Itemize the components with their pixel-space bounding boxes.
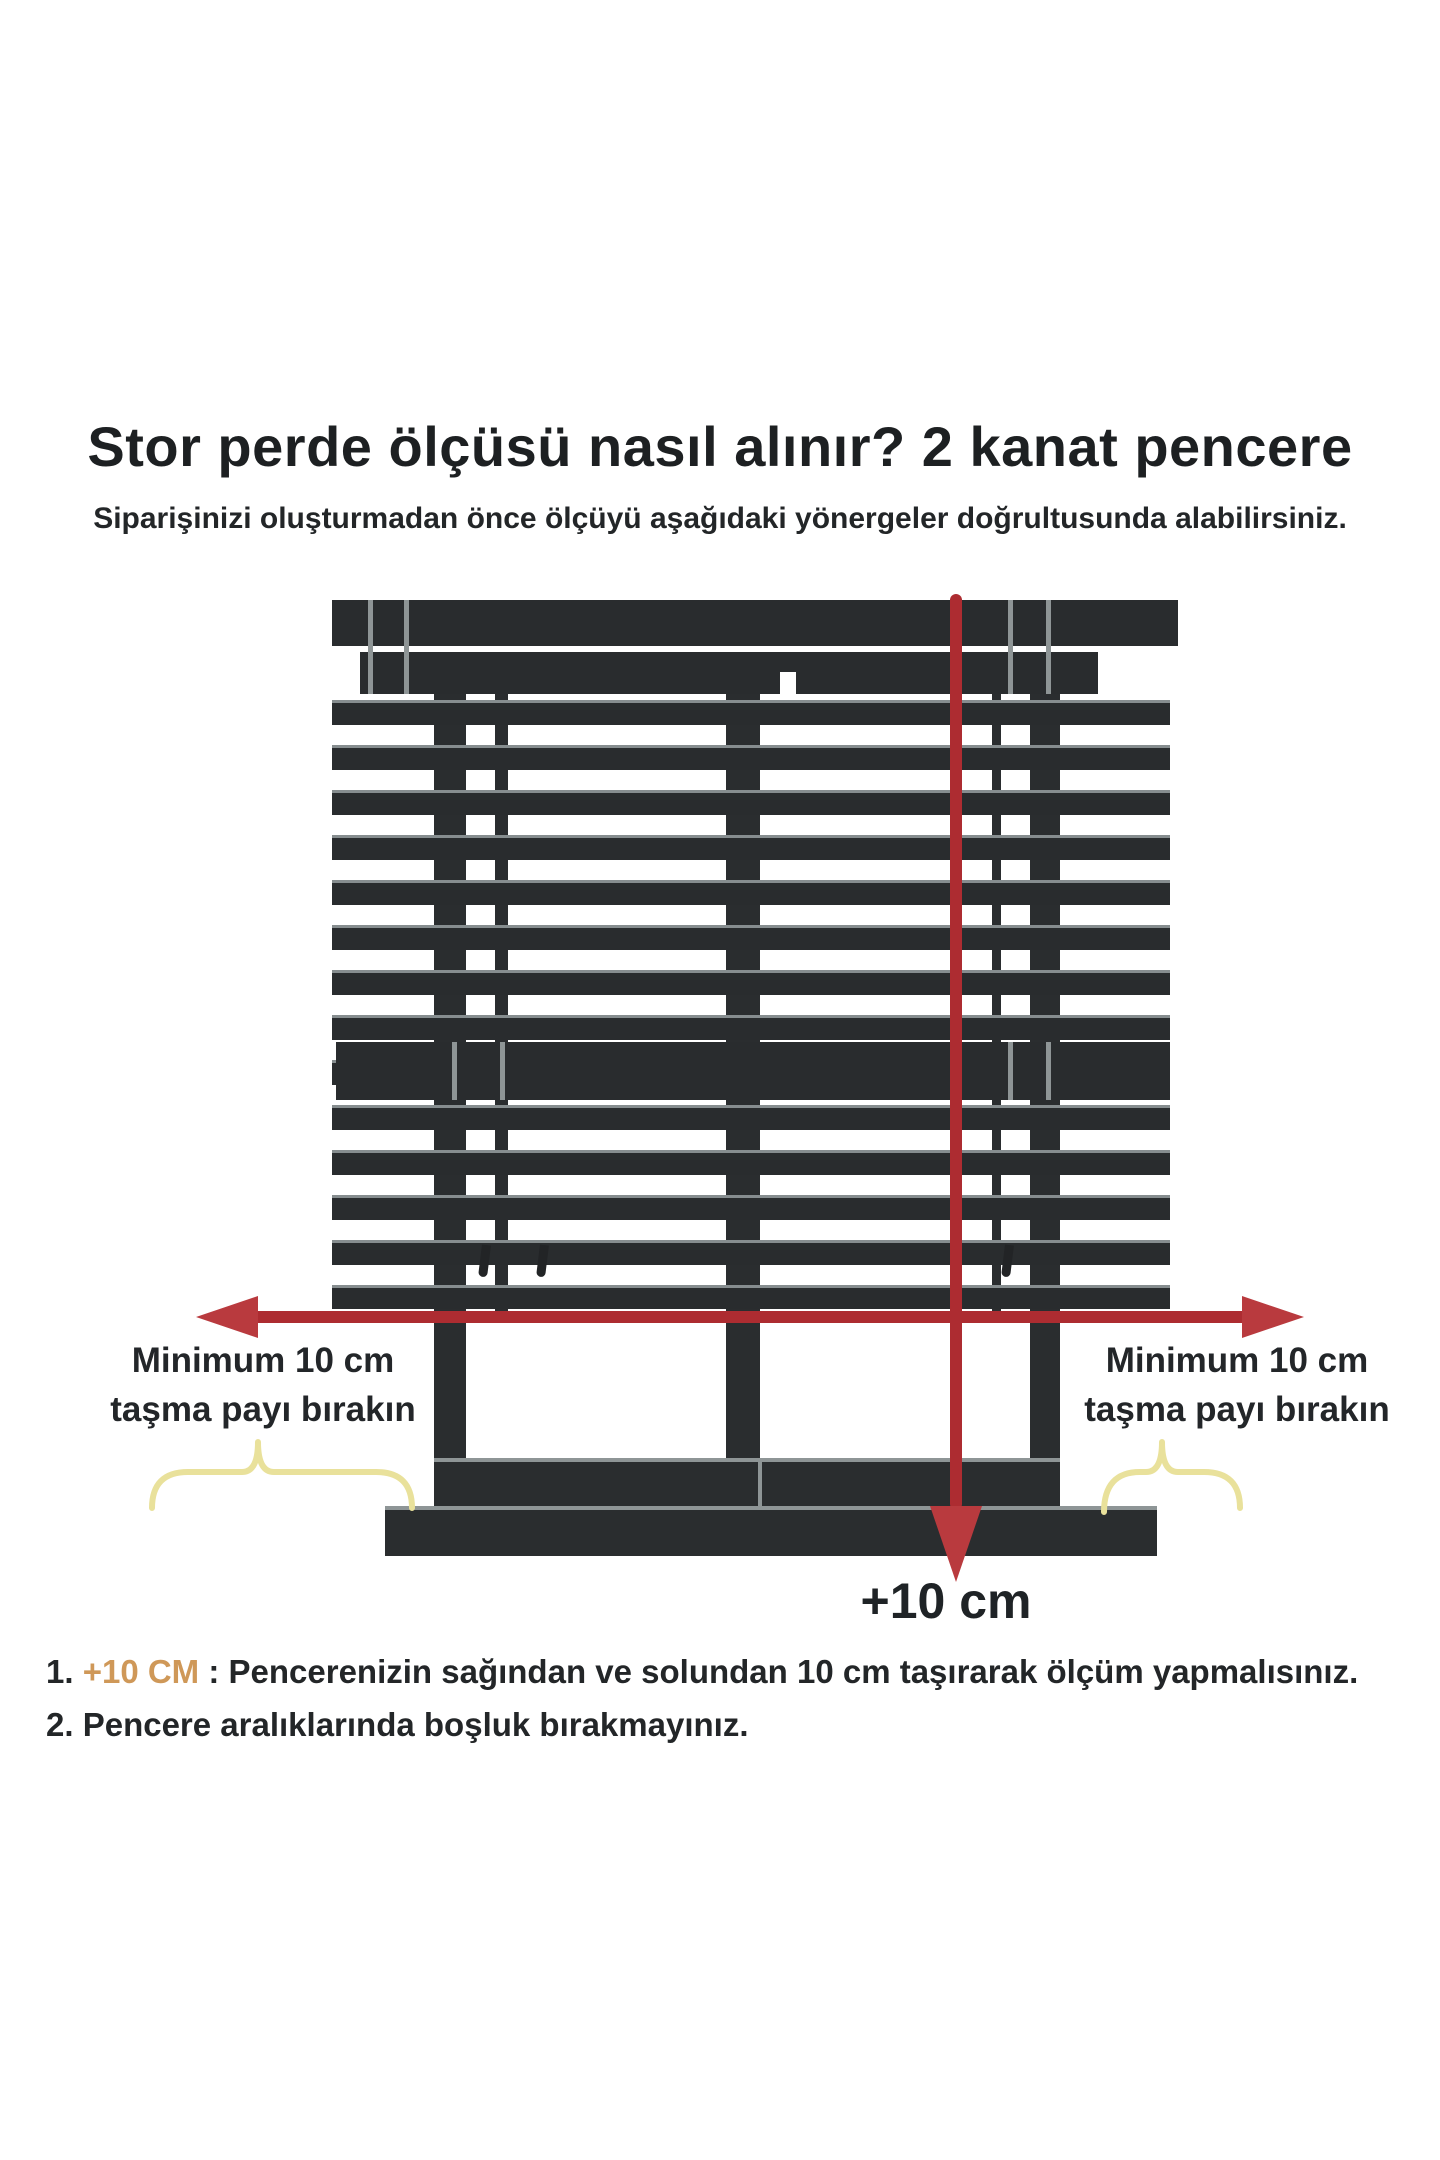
infographic-canvas: Stor perde ölçüsü nasıl alınır? 2 kanat … bbox=[0, 0, 1440, 2160]
horizontal-measure-arrow-shaft bbox=[251, 1311, 1248, 1323]
instruction-2-text: Pencere aralıklarında boşluk bırakmayını… bbox=[74, 1706, 749, 1743]
right-overhang-brace bbox=[1104, 1442, 1240, 1512]
instruction-item-2: 2. Pencere aralıklarında boşluk bırakmay… bbox=[46, 1698, 1426, 1751]
right-overhang-label-line2: taşma payı bırakın bbox=[1067, 1385, 1407, 1434]
vertical-measure-arrowhead bbox=[930, 1506, 982, 1582]
horizontal-measure-arrowhead-left bbox=[196, 1296, 258, 1338]
left-overhang-label-line1: Minimum 10 cm bbox=[93, 1336, 433, 1385]
instruction-1-number: 1. bbox=[46, 1653, 74, 1690]
right-overhang-label: Minimum 10 cm taşma payı bırakın bbox=[1067, 1336, 1407, 1434]
instruction-1-highlight: +10 CM bbox=[83, 1653, 199, 1690]
measurement-overlay bbox=[0, 0, 1440, 2160]
instruction-item-1: 1. +10 CM : Pencerenizin sağından ve sol… bbox=[46, 1645, 1426, 1698]
instruction-1-text: : Pencerenizin sağından ve solundan 10 c… bbox=[199, 1653, 1358, 1690]
vertical-measure-arrow-shaft bbox=[950, 594, 962, 1510]
instruction-list: 1. +10 CM : Pencerenizin sağından ve sol… bbox=[46, 1645, 1426, 1751]
height-overhang-label: +10 cm bbox=[796, 1572, 1096, 1630]
left-overhang-label: Minimum 10 cm taşma payı bırakın bbox=[93, 1336, 433, 1434]
horizontal-measure-arrowhead-right bbox=[1242, 1296, 1304, 1338]
instruction-2-number: 2. bbox=[46, 1706, 74, 1743]
right-overhang-label-line1: Minimum 10 cm bbox=[1067, 1336, 1407, 1385]
left-overhang-brace bbox=[152, 1442, 412, 1508]
left-overhang-label-line2: taşma payı bırakın bbox=[93, 1385, 433, 1434]
